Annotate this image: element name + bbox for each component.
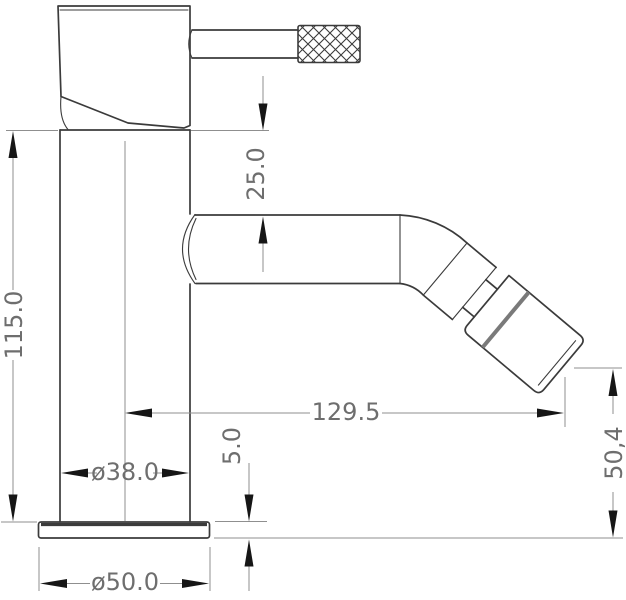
dim-label-base-diameter: ø50.0 (91, 568, 159, 596)
dim-label-body-diameter: ø38.0 (91, 458, 159, 486)
arrowhead-right (162, 469, 189, 478)
dimension-body-diameter: ø38.0 (61, 458, 189, 486)
arrowhead-up (259, 217, 268, 244)
aerator-face-line (538, 341, 575, 385)
arrowhead-up (609, 369, 618, 396)
dim-label-outlet-height: 50,4 (600, 426, 626, 479)
aerator-head-outline (465, 276, 583, 393)
aerator-head (465, 276, 583, 393)
technical-drawing: 115.0 25.0 129.5 5.0 50,4 ø38. (0, 0, 626, 600)
arrowhead-down (609, 511, 618, 538)
arrowhead-left (61, 469, 88, 478)
knurled-grip (298, 26, 360, 63)
spout-elbow (400, 215, 467, 295)
technical-drawing-canvas: 115.0 25.0 129.5 5.0 50,4 ø38. (0, 0, 626, 600)
dim-label-total-height: 115.0 (0, 291, 28, 360)
arrowhead-right (182, 579, 209, 588)
spout-joint-arc-inner (189, 219, 197, 280)
connector-neck (463, 280, 498, 317)
dim-label-spout-drop: 25.0 (242, 147, 270, 200)
aerator-ring-band (483, 292, 529, 347)
faucet-body (58, 6, 190, 128)
arrowhead-down (9, 495, 18, 522)
elbow-segment-joint-line (423, 243, 467, 295)
arrowhead-left (125, 409, 152, 418)
dimension-total-height: 115.0 (0, 131, 28, 522)
angled-tube-bottom-edge (423, 295, 452, 319)
arrowhead-up (9, 131, 18, 158)
faucet-spout (183, 215, 401, 284)
tube-neck-joint-line (452, 267, 496, 319)
dimension-base-thickness: 5.0 (218, 427, 254, 591)
dim-label-spout-reach: 129.5 (312, 398, 381, 426)
faucet-handle (189, 26, 360, 63)
elbow-inner-arc (400, 284, 423, 296)
arrowhead-down (259, 104, 268, 131)
arrowhead-left (40, 579, 67, 588)
neck-top-edge (486, 280, 498, 290)
dimension-spout-drop: 25.0 (242, 76, 270, 272)
dimension-outlet-height: 50,4 (600, 369, 626, 538)
dimension-base-diameter: ø50.0 (40, 568, 209, 596)
faucet-body-neck-arc (61, 97, 68, 130)
angled-tube-top-edge (467, 243, 496, 267)
arrowhead-down (245, 495, 254, 522)
dim-label-base-thickness: 5.0 (218, 427, 246, 465)
dimension-spout-reach: 129.5 (125, 398, 564, 426)
arrowhead-right (537, 409, 564, 418)
arrowhead-up (245, 540, 254, 567)
elbow-outer-arc (400, 215, 467, 243)
base-plate (39, 522, 210, 538)
neck-bottom-edge (463, 307, 475, 317)
